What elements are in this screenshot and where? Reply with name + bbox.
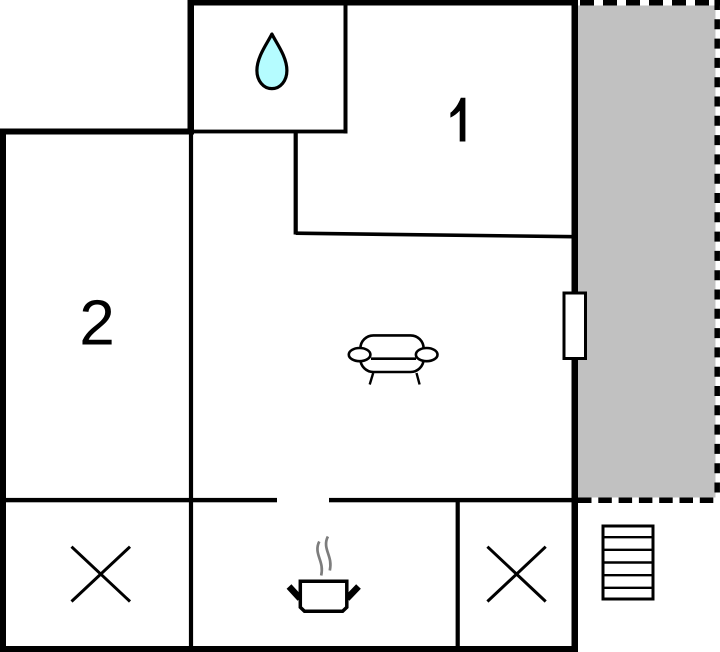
svg-text:2: 2: [79, 287, 115, 359]
